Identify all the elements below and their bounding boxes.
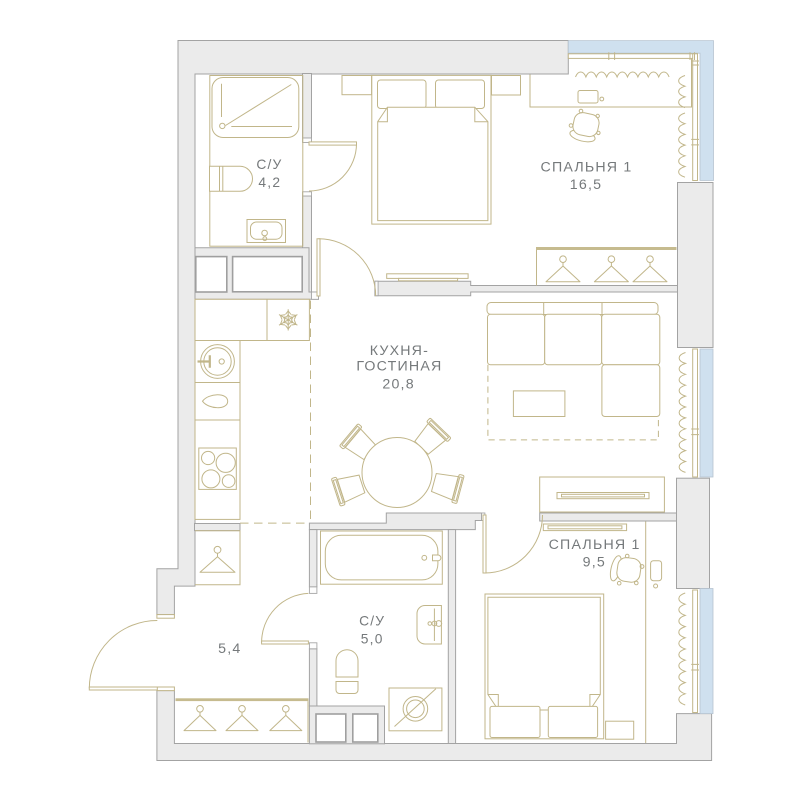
- svg-text:СПАЛЬНЯ 1: СПАЛЬНЯ 1: [549, 537, 641, 553]
- svg-text:16,5: 16,5: [570, 177, 602, 193]
- svg-text:СПАЛЬНЯ 1: СПАЛЬНЯ 1: [541, 159, 633, 175]
- svg-text:4,2: 4,2: [258, 175, 281, 190]
- svg-text:ГОСТИНАЯ: ГОСТИНАЯ: [356, 359, 442, 375]
- svg-text:5,0: 5,0: [361, 631, 384, 646]
- svg-text:20,8: 20,8: [382, 376, 414, 392]
- svg-text:С/У: С/У: [359, 614, 385, 629]
- svg-text:КУХНЯ-: КУХНЯ-: [370, 343, 429, 359]
- svg-text:С/У: С/У: [256, 157, 282, 172]
- svg-text:9,5: 9,5: [583, 555, 606, 571]
- svg-text:5,4: 5,4: [218, 641, 241, 657]
